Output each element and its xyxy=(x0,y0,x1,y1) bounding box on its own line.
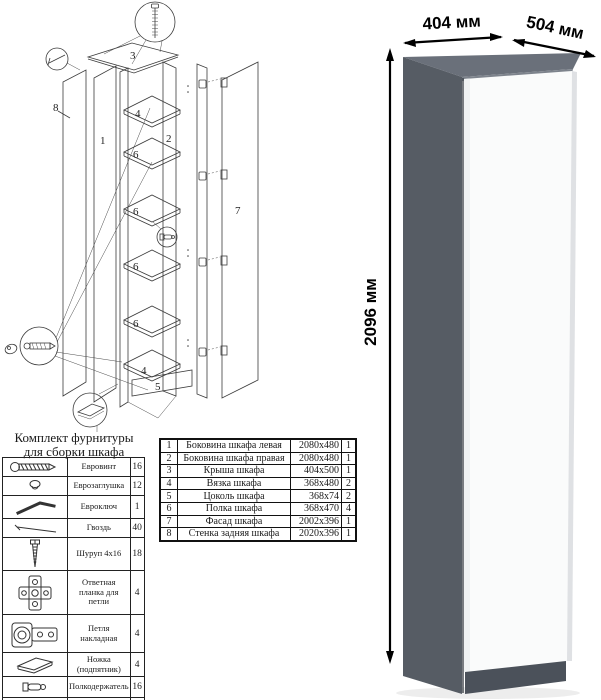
part-qty: 2 xyxy=(342,477,357,490)
width-dimension: 404 мм xyxy=(403,11,503,47)
part-name: Стенка задняя шкафа xyxy=(178,528,291,541)
part-num: 7 xyxy=(160,515,178,528)
foot-icon xyxy=(14,655,56,675)
hardware-name: Шуруп 4x16 xyxy=(68,538,131,571)
table-row: Шуруп 4x16 18 xyxy=(3,538,145,571)
part-label-3: 3 xyxy=(130,50,136,62)
table-row: Еврозаглушка 12 xyxy=(3,477,145,496)
part-qty: 1 xyxy=(342,439,357,452)
part-size: 2002x396 xyxy=(291,515,342,528)
table-row: Евроключ 1 xyxy=(3,496,145,519)
part-name: Боковина шкафа правая xyxy=(178,452,291,465)
part-label-4-top: 4 xyxy=(135,108,141,120)
table-row: Ножка (подпятник) 4 xyxy=(3,653,145,677)
part-num: 6 xyxy=(160,502,178,515)
shelf-pin-icon xyxy=(20,679,50,695)
euro-cap-icon xyxy=(26,479,44,493)
hinge-icon xyxy=(9,617,61,651)
hardware-name: Петля накладная xyxy=(68,615,131,653)
part-name: Полка шкафа xyxy=(178,502,291,515)
table-row: 2Боковина шкафа правая2080x4801 xyxy=(160,452,356,465)
part-num: 5 xyxy=(160,490,178,503)
table-row: Гвоздь 40 xyxy=(3,519,145,538)
part-size: 368x470 xyxy=(291,502,342,515)
table-row: 5Цоколь шкафа368x742 xyxy=(160,490,356,503)
table-row: 8Стенка задняя шкафа2020x3961 xyxy=(160,528,356,541)
assembly-sheet: 1 2 3 4 4 5 6 6 6 6 7 8 Комплект фурниту… xyxy=(0,0,601,700)
part-label-6d: 6 xyxy=(133,318,139,330)
hardware-name: Полкодержатель xyxy=(68,677,131,698)
hardware-qty: 16 xyxy=(130,458,144,477)
part-label-7: 7 xyxy=(235,205,241,217)
hardware-kit-title: Комплект фурнитуры для сборки шкафа xyxy=(0,431,148,458)
part-size: 2080x480 xyxy=(291,439,342,452)
part-size: 2080x480 xyxy=(291,452,342,465)
carcass-left-wall xyxy=(120,68,128,407)
hex-key-icon xyxy=(12,496,58,518)
depth-dimension: 504 мм xyxy=(512,12,596,58)
parts-table: 1Боковина шкафа левая2080x4801 2Боковина… xyxy=(159,438,357,542)
table-row: 6Полка шкафа368x4704 xyxy=(160,502,356,515)
hardware-qty: 4 xyxy=(130,653,144,677)
part-qty: 2 xyxy=(342,490,357,503)
part-label-1: 1 xyxy=(100,135,106,147)
height-label: 2096 мм xyxy=(361,278,380,346)
part-qty: 1 xyxy=(342,528,357,541)
shelf-pin-callout xyxy=(153,222,177,247)
carcass-right-wall xyxy=(163,62,176,396)
hardware-name: Евровинт xyxy=(68,458,131,477)
hardware-name: Ответная планка для петли xyxy=(68,571,131,615)
door-outline xyxy=(208,62,258,398)
hardware-qty: 4 xyxy=(130,571,144,615)
hardware-qty: 12 xyxy=(130,477,144,496)
screw-icon xyxy=(28,538,42,570)
part-name: Боковина шкафа левая xyxy=(178,439,291,452)
part-label-6a: 6 xyxy=(133,149,139,161)
table-row: Ответная планка для петли 4 xyxy=(3,571,145,615)
hardware-qty: 16 xyxy=(130,677,144,698)
nail-callout xyxy=(46,48,80,70)
part-num: 8 xyxy=(160,528,178,541)
part-label-6b: 6 xyxy=(133,206,139,218)
part-num: 2 xyxy=(160,452,178,465)
hardware-kit-title-line1: Комплект фурнитуры xyxy=(0,431,148,445)
part-size: 2020x396 xyxy=(291,528,342,541)
hardware-qty: 1 xyxy=(130,496,144,519)
hardware-name: Еврозаглушка xyxy=(68,477,131,496)
part-label-2: 2 xyxy=(166,133,172,145)
cabinet-door xyxy=(464,71,572,672)
part-name: Крыша шкафа xyxy=(178,465,291,478)
hinge-side-strip xyxy=(187,64,207,398)
table-row: 7Фасад шкафа2002x3961 xyxy=(160,515,356,528)
product-render: 2096 мм 404 мм 504 мм xyxy=(360,0,601,700)
part-size: 368x480 xyxy=(291,477,342,490)
table-row: 1Боковина шкафа левая2080x4801 xyxy=(160,439,356,452)
back-panel-outline xyxy=(63,70,86,396)
part-qty: 1 xyxy=(342,515,357,528)
table-row: Полкодержатель 16 xyxy=(3,677,145,698)
hardware-qty: 4 xyxy=(130,615,144,653)
part-size: 404x500 xyxy=(291,465,342,478)
table-row: Петля накладная 4 xyxy=(3,615,145,653)
cabinet-side-panel xyxy=(403,57,462,694)
part-name: Фасад шкафа xyxy=(178,515,291,528)
part-num: 4 xyxy=(160,477,178,490)
part-qty: 1 xyxy=(342,465,357,478)
table-row: 4Вязка шкафа368x4802 xyxy=(160,477,356,490)
width-label: 404 мм xyxy=(422,11,481,33)
hardware-table: Евровинт 16 Еврозаглушка 12 Евроключ 1 Г… xyxy=(2,457,145,700)
part-name: Вязка шкафа xyxy=(178,477,291,490)
nail-icon xyxy=(11,522,59,535)
confirmat-screw-icon xyxy=(9,460,61,474)
part-label-8: 8 xyxy=(53,102,59,114)
part-name: Цоколь шкафа xyxy=(178,490,291,503)
confirmat-screw-callout xyxy=(104,2,175,64)
exploded-diagram: 1 2 3 4 4 5 6 6 6 6 7 8 xyxy=(0,0,360,432)
cabinet-door-shade xyxy=(464,79,470,673)
depth-label: 504 мм xyxy=(525,12,586,43)
part-label-4-bottom: 4 xyxy=(141,365,147,377)
part-qty: 1 xyxy=(342,452,357,465)
table-row: 3Крыша шкафа404x5001 xyxy=(160,465,356,478)
table-row: Евровинт 16 xyxy=(3,458,145,477)
hardware-name: Гвоздь xyxy=(68,519,131,538)
hardware-qty: 40 xyxy=(130,519,144,538)
part-label-5: 5 xyxy=(155,381,161,393)
part-qty: 4 xyxy=(342,502,357,515)
hinge-plate-icon xyxy=(12,573,58,613)
hardware-name: Ножка (подпятник) xyxy=(68,653,131,677)
left-side-outline xyxy=(94,66,116,402)
part-label-6c: 6 xyxy=(133,261,139,273)
height-dimension: 2096 мм xyxy=(361,48,394,664)
hardware-qty: 18 xyxy=(130,538,144,571)
part-num: 1 xyxy=(160,439,178,452)
euro-screw-callout xyxy=(4,108,152,390)
part-num: 3 xyxy=(160,465,178,478)
part-size: 368x74 xyxy=(291,490,342,503)
hardware-name: Евроключ xyxy=(68,496,131,519)
